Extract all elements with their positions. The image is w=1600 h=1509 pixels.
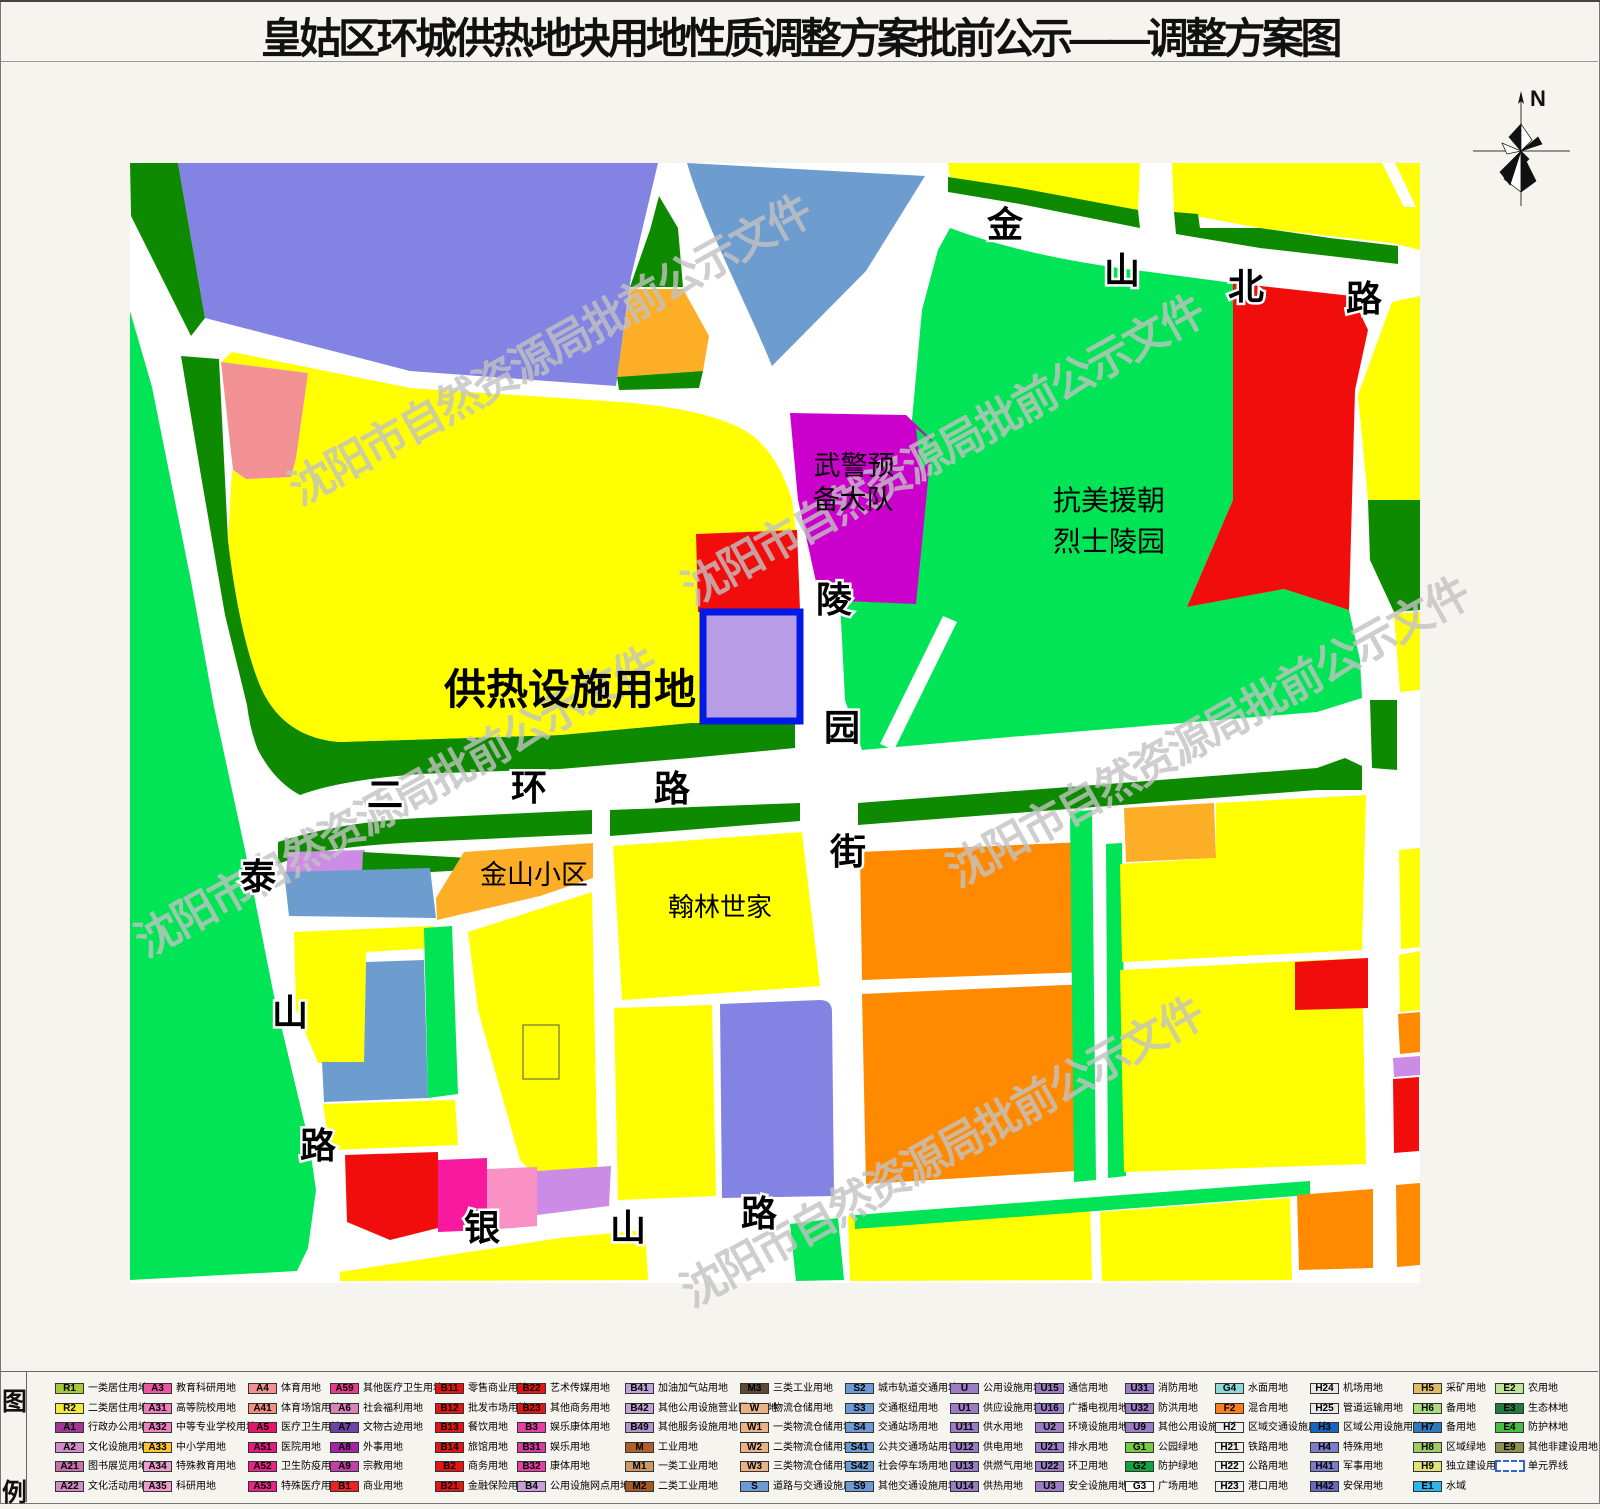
svg-text:街: 街: [829, 831, 866, 872]
svg-text:陵: 陵: [816, 579, 852, 620]
svg-text:备大队: 备大队: [813, 485, 894, 515]
svg-text:泰: 泰: [240, 856, 277, 897]
svg-text:山: 山: [610, 1207, 646, 1248]
svg-text:金: 金: [986, 204, 1024, 245]
svg-text:山: 山: [272, 992, 308, 1033]
svg-text:沈阳市自然资源局批前公示文件: 沈阳市自然资源局批前公示文件: [939, 568, 1478, 896]
svg-text:供热设施用地: 供热设施用地: [444, 666, 696, 713]
svg-text:金山小区: 金山小区: [480, 860, 588, 890]
svg-text:路: 路: [300, 1125, 337, 1166]
svg-text:武警预: 武警预: [814, 451, 895, 481]
svg-text:沈阳市自然资源局批前公示文件: 沈阳市自然资源局批前公示文件: [673, 988, 1212, 1316]
svg-text:翰林世家: 翰林世家: [668, 892, 772, 922]
svg-text:路: 路: [654, 768, 691, 809]
svg-text:N: N: [1530, 86, 1546, 111]
svg-text:路: 路: [741, 1193, 778, 1234]
svg-text:环: 环: [511, 767, 547, 808]
svg-text:沈阳市自然资源局批前公示文件: 沈阳市自然资源局批前公示文件: [674, 286, 1213, 614]
svg-text:抗美援朝: 抗美援朝: [1053, 485, 1165, 516]
svg-text:烈士陵园: 烈士陵园: [1053, 526, 1165, 557]
svg-text:银: 银: [464, 1207, 500, 1248]
svg-text:沈阳市自然资源局批前公示文件: 沈阳市自然资源局批前公示文件: [281, 186, 820, 514]
svg-text:山: 山: [1104, 250, 1140, 291]
svg-text:二: 二: [367, 774, 403, 815]
svg-text:园: 园: [824, 707, 860, 748]
svg-text:路: 路: [1346, 278, 1383, 319]
svg-text:北: 北: [1228, 266, 1264, 307]
